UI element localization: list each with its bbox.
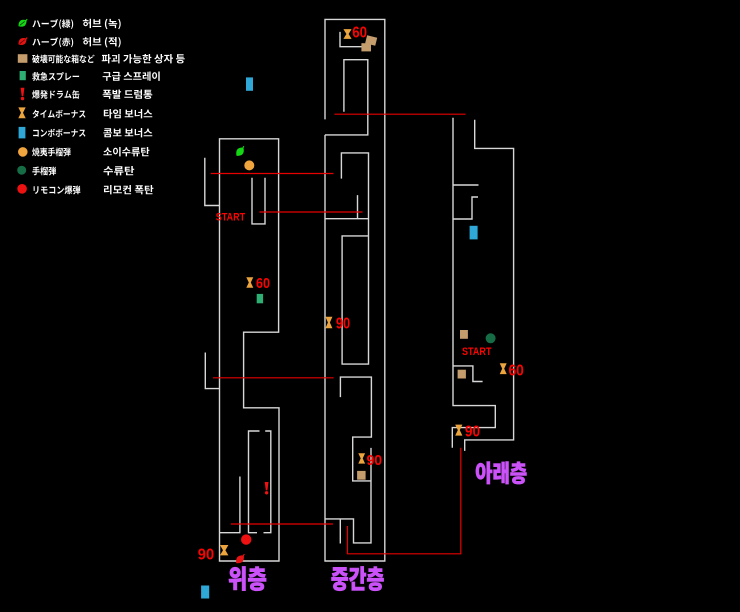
svg-text:90: 90 (367, 452, 383, 469)
svg-text:60: 60 (352, 24, 367, 41)
svg-text:60: 60 (256, 275, 270, 292)
svg-text:START: START (216, 211, 246, 223)
svg-text:START: START (462, 346, 492, 358)
svg-text:90: 90 (336, 316, 350, 333)
svg-text:90: 90 (465, 423, 480, 440)
svg-text:90: 90 (198, 546, 214, 563)
svg-text:60: 60 (509, 363, 524, 380)
